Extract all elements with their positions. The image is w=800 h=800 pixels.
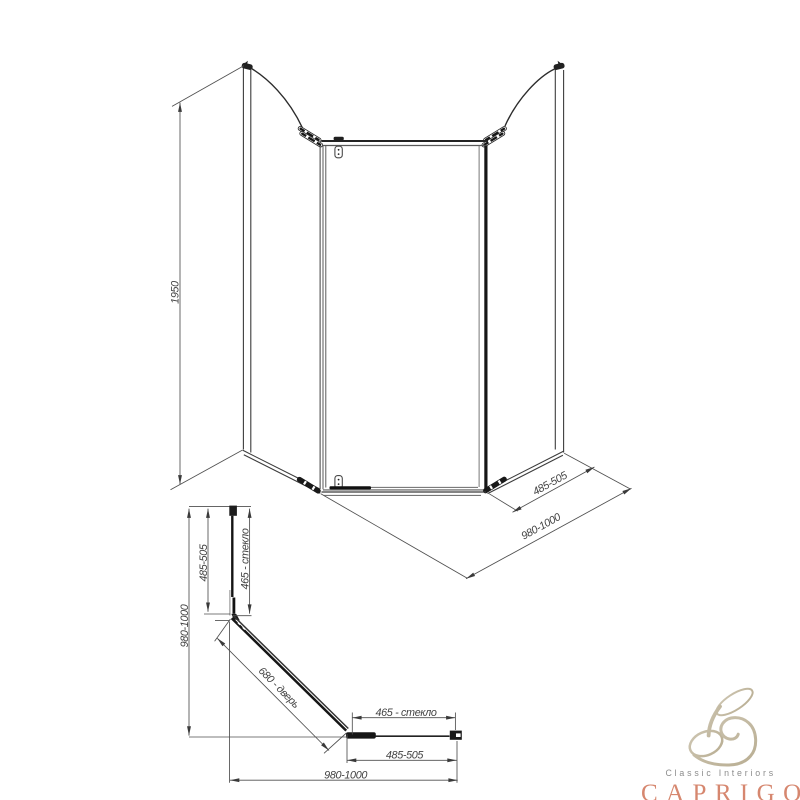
svg-text:980-1000: 980-1000 [324, 770, 367, 782]
svg-text:680 - дверь: 680 - дверь [256, 665, 302, 711]
svg-text:485-505: 485-505 [198, 543, 210, 582]
svg-text:980-1000: 980-1000 [179, 604, 191, 647]
svg-text:485-505: 485-505 [386, 750, 425, 762]
svg-text:CAPRIGO: CAPRIGO [641, 780, 800, 800]
svg-text:1950: 1950 [169, 281, 181, 304]
svg-text:465 - стекло: 465 - стекло [239, 528, 251, 589]
svg-text:Classic Interiors: Classic Interiors [666, 768, 776, 778]
svg-text:465 - стекло: 465 - стекло [376, 707, 437, 719]
